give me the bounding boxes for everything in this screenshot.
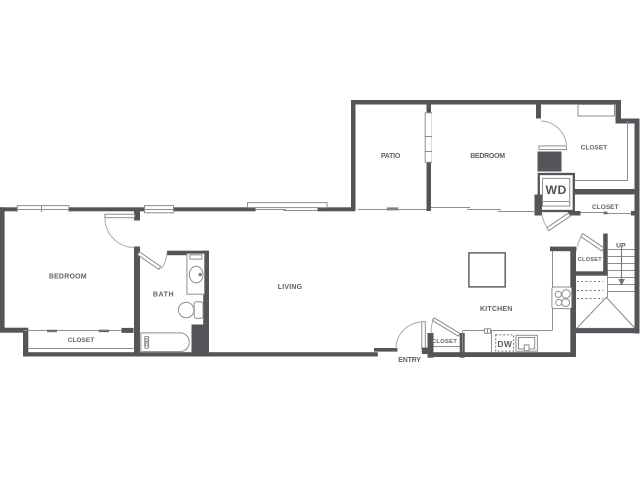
svg-text:ENTRY: ENTRY [398,357,421,364]
svg-text:BEDROOM: BEDROOM [49,273,87,280]
svg-text:KITCHEN: KITCHEN [480,306,513,313]
svg-text:LIVING: LIVING [278,284,303,291]
svg-text:CLOSET: CLOSET [432,339,457,345]
svg-text:DW: DW [497,339,513,349]
svg-text:CLOSET: CLOSET [578,257,603,263]
svg-text:WD: WD [545,183,567,197]
svg-text:CLOSET: CLOSET [592,204,619,211]
svg-text:CLOSET: CLOSET [581,145,608,152]
svg-text:BATH: BATH [153,291,174,298]
svg-text:CLOSET: CLOSET [68,337,95,344]
svg-text:PATIO: PATIO [381,153,401,160]
svg-text:BEDROOM: BEDROOM [470,153,505,160]
